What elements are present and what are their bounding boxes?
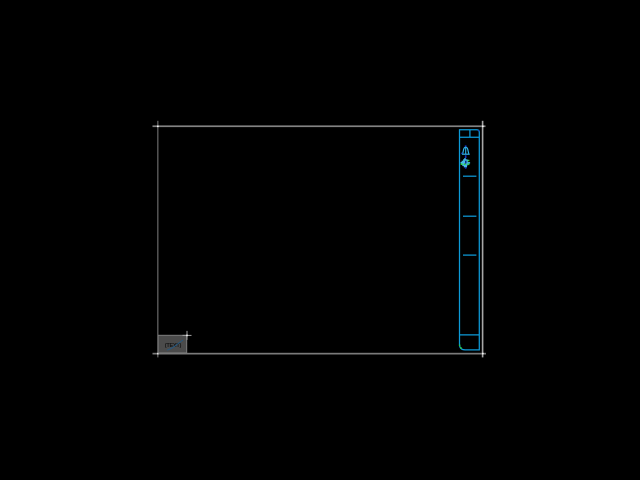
svg-text:(TEXT): (TEXT) [165,343,182,349]
